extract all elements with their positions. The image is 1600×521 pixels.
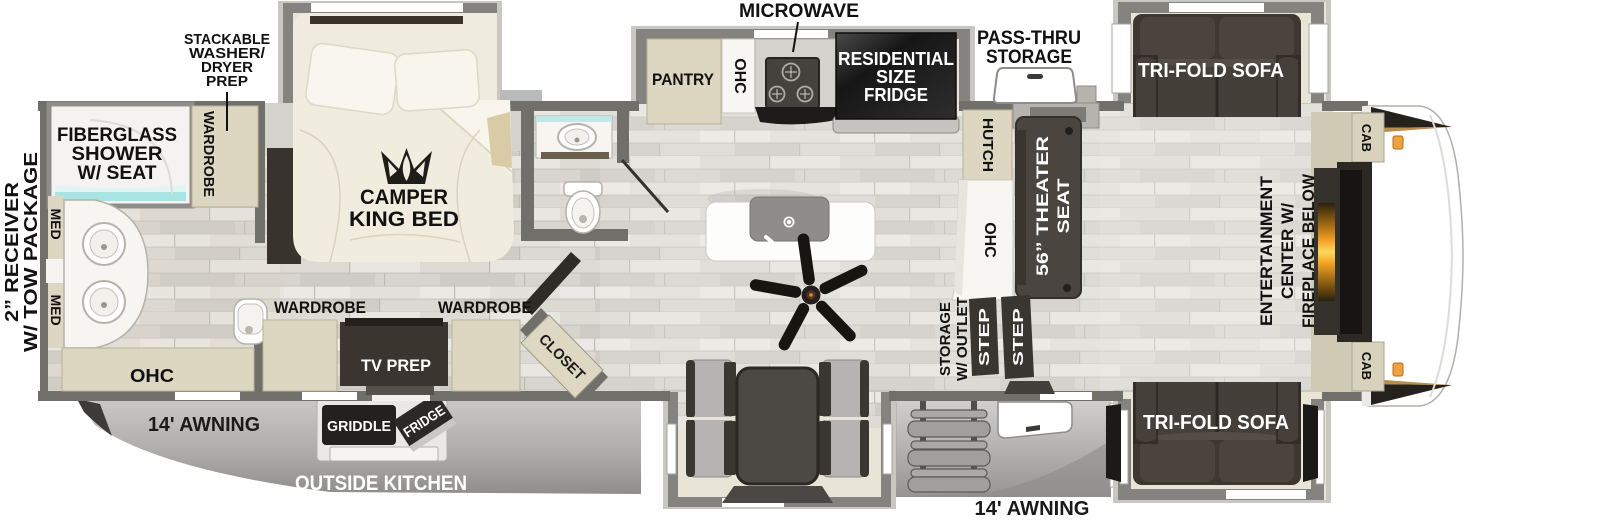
- svg-text:STORAGE: STORAGE: [986, 47, 1072, 68]
- svg-text:SHOWER: SHOWER: [72, 144, 163, 165]
- svg-text:FIBERGLASS: FIBERGLASS: [57, 125, 177, 146]
- svg-text:ENTERTAINMENT: ENTERTAINMENT: [1257, 175, 1276, 326]
- svg-text:W/ TOW PACKAGE: W/ TOW PACKAGE: [21, 152, 41, 352]
- svg-text:CAB: CAB: [1359, 124, 1374, 152]
- svg-text:W/ SEAT: W/ SEAT: [78, 163, 157, 184]
- svg-text:PREP: PREP: [206, 73, 248, 90]
- svg-text:HUTCH: HUTCH: [979, 118, 996, 172]
- svg-text:WARDROBE: WARDROBE: [438, 298, 532, 317]
- svg-text:14' AWNING: 14' AWNING: [975, 498, 1090, 520]
- svg-text:14' AWNING: 14' AWNING: [148, 414, 260, 436]
- svg-text:OUTSIDE KITCHEN: OUTSIDE KITCHEN: [295, 472, 467, 495]
- svg-text:TRI-FOLD SOFA: TRI-FOLD SOFA: [1138, 60, 1284, 82]
- svg-text:FRIDGE: FRIDGE: [864, 85, 928, 105]
- svg-text:PASS-THRU: PASS-THRU: [977, 28, 1081, 49]
- svg-text:SIZE: SIZE: [876, 67, 916, 87]
- svg-text:WARDROBE: WARDROBE: [274, 298, 366, 317]
- svg-text:CENTER W/: CENTER W/: [1278, 203, 1297, 299]
- svg-text:KING BED: KING BED: [349, 208, 459, 231]
- svg-text:RESIDENTIAL: RESIDENTIAL: [838, 49, 954, 69]
- svg-text:OHC: OHC: [731, 58, 748, 94]
- svg-text:2” RECEIVER: 2” RECEIVER: [2, 182, 22, 322]
- svg-text:OHC: OHC: [981, 222, 998, 258]
- svg-text:OHC: OHC: [130, 366, 174, 386]
- svg-text:W/ OUTLET: W/ OUTLET: [954, 297, 971, 381]
- svg-text:GRIDDLE: GRIDDLE: [327, 418, 391, 435]
- svg-text:PANTRY: PANTRY: [652, 70, 715, 89]
- svg-text:FIREPLACE BELOW: FIREPLACE BELOW: [1299, 173, 1318, 328]
- svg-text:CAB: CAB: [1359, 352, 1374, 380]
- svg-text:WARDROBE: WARDROBE: [200, 111, 217, 197]
- svg-text:CAMPER: CAMPER: [360, 186, 448, 209]
- svg-text:56” THEATER: 56” THEATER: [1033, 136, 1052, 276]
- svg-text:SEAT: SEAT: [1054, 178, 1073, 234]
- svg-text:MED: MED: [48, 294, 64, 325]
- svg-text:TRI-FOLD SOFA: TRI-FOLD SOFA: [1143, 412, 1289, 434]
- svg-text:TV PREP: TV PREP: [361, 356, 431, 375]
- svg-text:STEP: STEP: [1010, 308, 1027, 366]
- svg-text:MED: MED: [48, 208, 64, 239]
- svg-text:MICROWAVE: MICROWAVE: [739, 1, 859, 22]
- svg-text:STORAGE: STORAGE: [937, 302, 954, 376]
- svg-text:STEP: STEP: [976, 308, 993, 366]
